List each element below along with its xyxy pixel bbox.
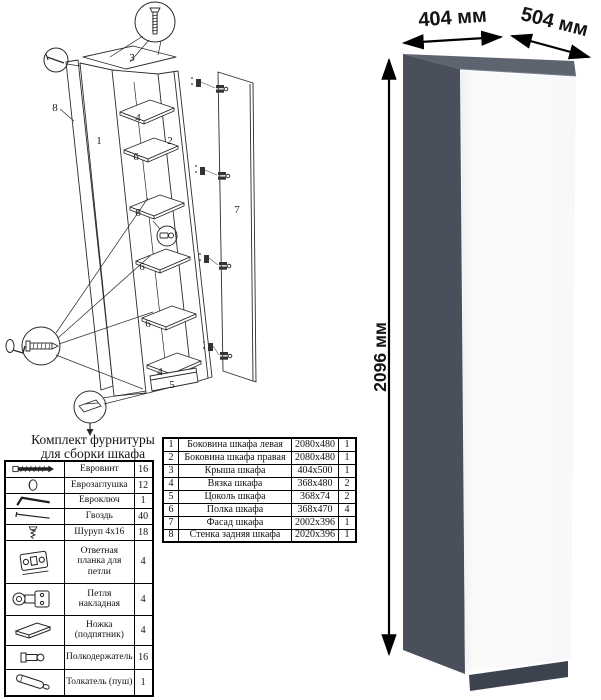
- table-row: 8 Стенка задняя шкафа 2020x396 1: [163, 529, 356, 542]
- part-size: 368x480: [292, 477, 339, 490]
- hardware-qty: 16: [134, 645, 153, 669]
- push-opener-icon: [7, 671, 59, 694]
- hardware-qty: 1: [134, 669, 153, 696]
- label-shelf-2: 6: [135, 207, 141, 219]
- hardware-name: Ножка (подпятник): [65, 615, 135, 645]
- confirmat-screw-icon: [7, 462, 59, 476]
- euro-cap-icon: [7, 478, 59, 492]
- table-row: 2 Боковина шкафа правая 2080x480 1: [163, 451, 356, 464]
- part-name: Вязка шкафа: [179, 477, 292, 490]
- wardrobe-body: [403, 54, 576, 691]
- table-row: 1 Боковина шкафа левая 2080x480 1: [163, 438, 356, 451]
- table-row: Шуруп 4x16 18: [5, 524, 153, 540]
- table-row: 3 Крыша шкафа 404x500 1: [163, 464, 356, 477]
- hardware-name: Гвоздь: [65, 508, 135, 524]
- hinge-mounting-plate-icon: [7, 543, 59, 581]
- part-num: 7: [163, 516, 179, 529]
- part-size: 368x470: [292, 503, 339, 516]
- part-size: 2020x396: [292, 529, 339, 542]
- label-shelf-4: 6: [145, 318, 151, 330]
- part-qty: 2: [339, 477, 357, 490]
- part-num: 5: [163, 490, 179, 503]
- part-num: 8: [163, 529, 179, 542]
- hardware-qty: 12: [134, 477, 153, 493]
- part-name: Крыша шкафа: [179, 464, 292, 477]
- part-qty: 1: [339, 464, 357, 477]
- label-back-panel: 8: [52, 102, 58, 114]
- table-row: Ответная планка для петли 4: [5, 540, 153, 583]
- part-num: 3: [163, 464, 179, 477]
- hardware-qty: 4: [134, 615, 153, 645]
- label-shelf-1: 6: [133, 151, 139, 163]
- overlay-hinge-icon: [7, 585, 59, 613]
- hardware-qty: 18: [134, 524, 153, 540]
- part-name: Цоколь шкафа: [179, 490, 292, 503]
- depth-dimension-label: 504 мм: [519, 3, 591, 41]
- table-row: Евроключ 1: [5, 493, 153, 508]
- part-name: Стенка задняя шкафа: [179, 529, 292, 542]
- hardware-name: Еврозаглушка: [65, 477, 135, 493]
- part-name: Полка шкафа: [179, 503, 292, 516]
- label-facade: 7: [234, 204, 240, 216]
- assembly-instruction-sheet: 3 8 1 4 2 6 6 6 6 4 5 7 Комплект фурниту…: [0, 0, 601, 700]
- part-qty: 1: [339, 451, 357, 464]
- euro-key-drawing: [6, 340, 14, 353]
- table-row: Полкодержатель 16: [5, 645, 153, 669]
- wardrobe-side-panel: [403, 54, 465, 674]
- part-num: 1: [163, 438, 179, 451]
- table-row: 4 Вязка шкафа 368x480 2: [163, 477, 356, 490]
- parts-list-table: 1 Боковина шкафа левая 2080x480 1 2 Боко…: [162, 437, 357, 543]
- wood-screw-icon: [7, 525, 59, 540]
- hardware-qty: 4: [134, 540, 153, 583]
- table-row: Петля накладная 4: [5, 583, 153, 615]
- label-right-side: 2: [167, 135, 173, 147]
- width-dimension-arrow: [404, 37, 501, 43]
- label-shelf-3: 6: [139, 261, 145, 273]
- part-qty: 1: [339, 516, 357, 529]
- table-row: Ножка (подпятник) 4: [5, 615, 153, 645]
- hardware-kit-title: Комплект фурнитуры для сборки шкафа: [12, 433, 174, 461]
- hardware-qty: 4: [134, 583, 153, 615]
- hardware-name: Толкатель (пуш): [65, 669, 135, 696]
- part-name: Фасад шкафа: [179, 516, 292, 529]
- hardware-kit-table: Евровинт 16 Еврозаглушка 12 Евроключ 1 Г…: [4, 460, 154, 697]
- part-qty: 4: [339, 503, 357, 516]
- label-tie-top: 4: [135, 112, 141, 124]
- part-num: 4: [163, 477, 179, 490]
- product-render: 404 мм 504 мм 2096 мм: [370, 0, 601, 700]
- label-left-side: 1: [96, 135, 102, 147]
- hardware-name: Петля накладная: [65, 583, 135, 615]
- table-row: Гвоздь 40: [5, 508, 153, 524]
- label-top-panel: 3: [129, 52, 135, 64]
- height-dimension-label: 2096 мм: [370, 322, 390, 392]
- wardrobe-door: [461, 71, 576, 672]
- part-qty: 2: [339, 490, 357, 503]
- hardware-name: Евровинт: [65, 461, 135, 477]
- label-plinth: 5: [169, 379, 175, 391]
- part-num: 6: [163, 503, 179, 516]
- table-row: Толкатель (пуш) 1: [5, 669, 153, 696]
- part-name: Боковина шкафа правая: [179, 451, 292, 464]
- part-size: 2002x396: [292, 516, 339, 529]
- part-size: 2080x480: [292, 438, 339, 451]
- width-dimension-label: 404 мм: [418, 5, 488, 32]
- table-row: 7 Фасад шкафа 2002x396 1: [163, 516, 356, 529]
- hardware-name: Шуруп 4x16: [65, 524, 135, 540]
- table-row: 6 Полка шкафа 368x470 4: [163, 503, 356, 516]
- table-row: Еврозаглушка 12: [5, 477, 153, 493]
- hardware-name: Евроключ: [65, 493, 135, 508]
- part-name: Боковина шкафа левая: [179, 438, 292, 451]
- shelf-support-icon: [7, 647, 59, 667]
- part-size: 368x74: [292, 490, 339, 503]
- hex-key-icon: [7, 494, 59, 507]
- exploded-diagram: 3 8 1 4 2 6 6 6 6 4 5 7: [0, 0, 370, 445]
- foot-glide-icon: [7, 618, 59, 642]
- part-size: 404x500: [292, 464, 339, 477]
- hardware-qty: 1: [134, 493, 153, 508]
- part-qty: 1: [339, 529, 357, 542]
- part-size: 2080x480: [292, 451, 339, 464]
- table-row: 5 Цоколь шкафа 368x74 2: [163, 490, 356, 503]
- right-side-panel-2: [158, 71, 212, 383]
- nail-icon: [7, 509, 59, 523]
- hardware-name: Ответная планка для петли: [65, 540, 135, 583]
- table-row: Евровинт 16: [5, 461, 153, 477]
- part-qty: 1: [339, 438, 357, 451]
- hardware-qty: 40: [134, 508, 153, 524]
- foot-detail-callout: [74, 388, 168, 436]
- shelf-support-detail-callout: [153, 221, 177, 246]
- hardware-kit-title-line1: Комплект фурнитуры: [12, 433, 174, 447]
- hardware-qty: 16: [134, 461, 153, 477]
- hardware-name: Полкодержатель: [65, 645, 135, 669]
- part-num: 2: [163, 451, 179, 464]
- label-tie-bottom: 4: [157, 366, 163, 378]
